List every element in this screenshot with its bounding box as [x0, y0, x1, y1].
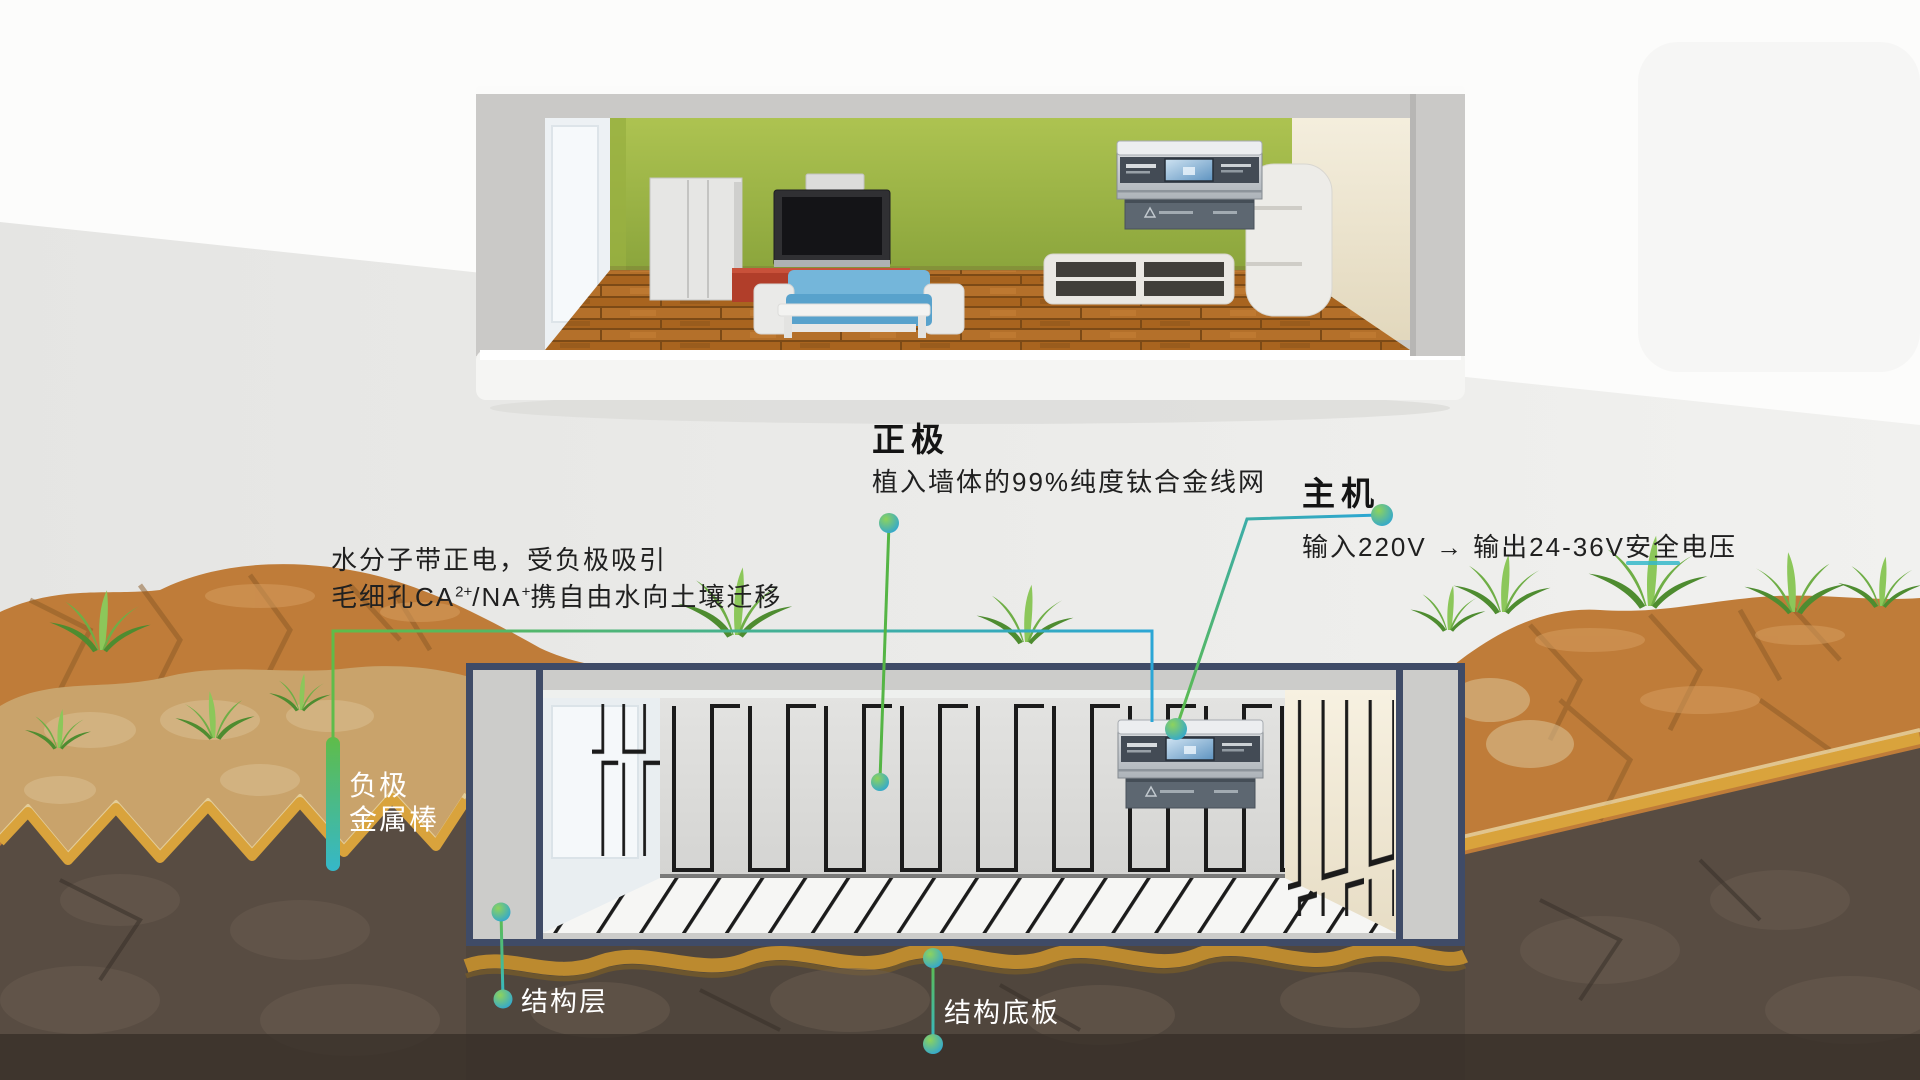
soil-bottom-shade	[0, 1034, 1920, 1080]
basement-cutaway	[466, 663, 1465, 946]
water-line2-seg: 携自由水向土壤迁移	[530, 582, 782, 612]
tv-bench	[1044, 254, 1234, 304]
positive-electrode-title: 正极	[872, 413, 950, 461]
positive-electrode-desc: 植入墙体的99%纯度钛合金线网	[872, 462, 1266, 499]
structure-slab-label: 结构底板	[944, 991, 1060, 1030]
negative-line1: 负极	[349, 769, 439, 803]
wire-mesh	[543, 700, 1396, 933]
water-line2-seg: /NA	[472, 582, 521, 612]
floor-wire-runs	[543, 878, 1396, 933]
wardrobe	[650, 178, 742, 300]
water-molecule-line1: 水分子带正电，受负极吸引	[331, 540, 667, 577]
connector-structure-layer	[501, 912, 503, 999]
coffee-table	[778, 304, 930, 316]
superscript-2plus: 2+	[455, 583, 472, 600]
structure-layer-label: 结构层	[521, 980, 608, 1019]
negative-rod	[326, 737, 340, 871]
speaker	[806, 174, 864, 190]
negative-electrode-label: 负极 金属棒	[349, 769, 439, 837]
negative-line2: 金属棒	[349, 803, 439, 837]
host-desc: 输入220V → 输出24-36V安全电压	[1302, 527, 1737, 564]
water-line2-seg: 毛细孔CA	[331, 582, 455, 612]
main-unit-basement	[1118, 720, 1263, 808]
main-unit-upper	[1117, 141, 1262, 229]
water-molecule-line2: 毛细孔CA2+/NA+携自由水向土壤迁移	[331, 577, 782, 614]
infographic-canvas: 正极 植入墙体的99%纯度钛合金线网 主机 输入220V → 输出24-36V安…	[0, 0, 1920, 1080]
host-title: 主机	[1302, 467, 1380, 515]
living-room-cutaway	[476, 86, 1465, 424]
